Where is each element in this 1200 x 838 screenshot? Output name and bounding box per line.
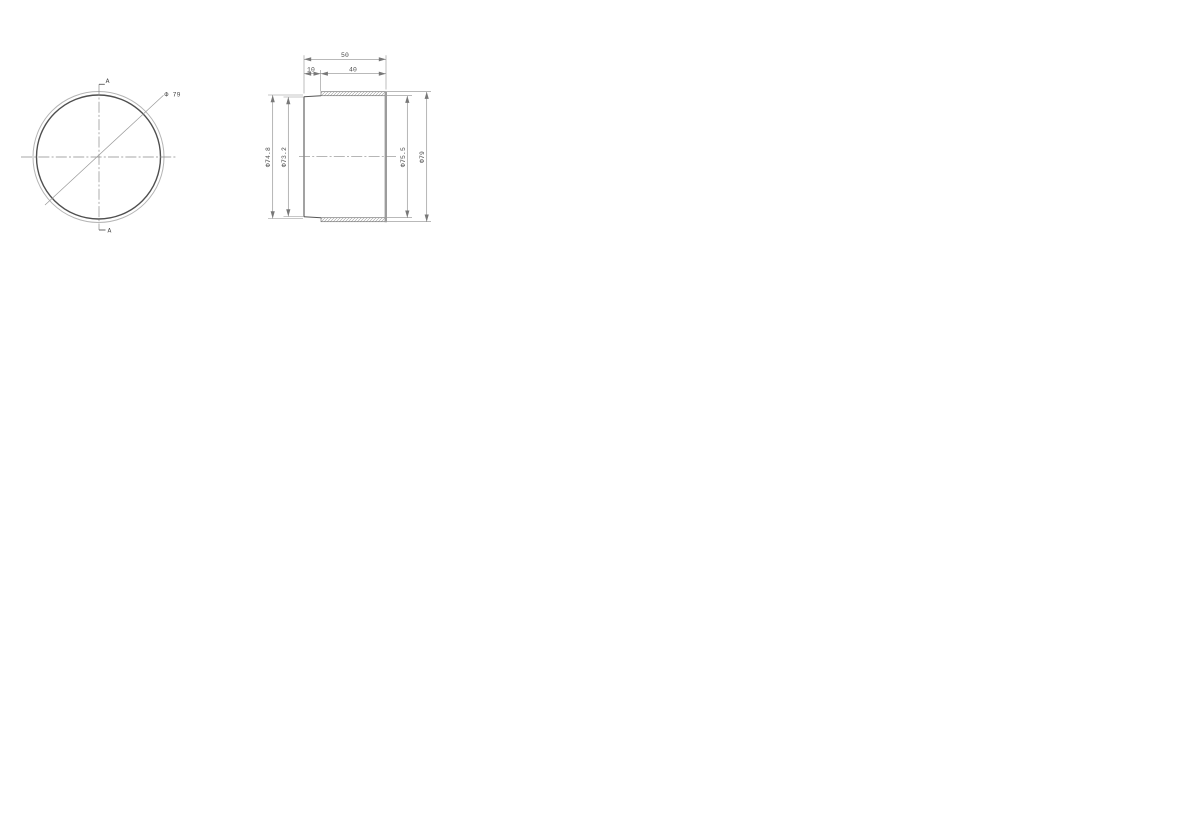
- dim-text-74-8: Φ74.8: [265, 147, 272, 167]
- dim-length-total: 50: [304, 52, 386, 94]
- leader-line: [45, 95, 164, 205]
- section-label-bottom: A: [108, 227, 112, 234]
- front-diameter-label: Φ 79: [165, 92, 181, 99]
- dim-text-79: Φ79: [419, 151, 426, 163]
- bottom-taper-line: [304, 217, 321, 218]
- dim-text-75-5: Φ75.5: [400, 147, 407, 167]
- top-taper-line: [304, 96, 321, 97]
- section-view: 50 10 40 Φ74.8 Φ73.2: [265, 52, 431, 222]
- dim-length-split: 10 40: [304, 66, 386, 91]
- section-marker-bottom: A: [99, 227, 112, 234]
- dim-text-50: 50: [341, 52, 349, 59]
- dim-text-10: 10: [307, 66, 315, 73]
- top-thread-band: [321, 92, 386, 96]
- section-label-top: A: [106, 78, 110, 85]
- dim-text-73-2: Φ73.2: [281, 147, 288, 167]
- front-view: A A Φ 79: [21, 78, 181, 235]
- dim-text-40: 40: [349, 66, 357, 73]
- drawing-sheet: A A Φ 79: [0, 0, 1200, 838]
- bottom-thread-band: [321, 218, 386, 222]
- cad-drawing-svg: A A Φ 79: [0, 0, 1200, 838]
- section-marker-top: A: [99, 78, 110, 85]
